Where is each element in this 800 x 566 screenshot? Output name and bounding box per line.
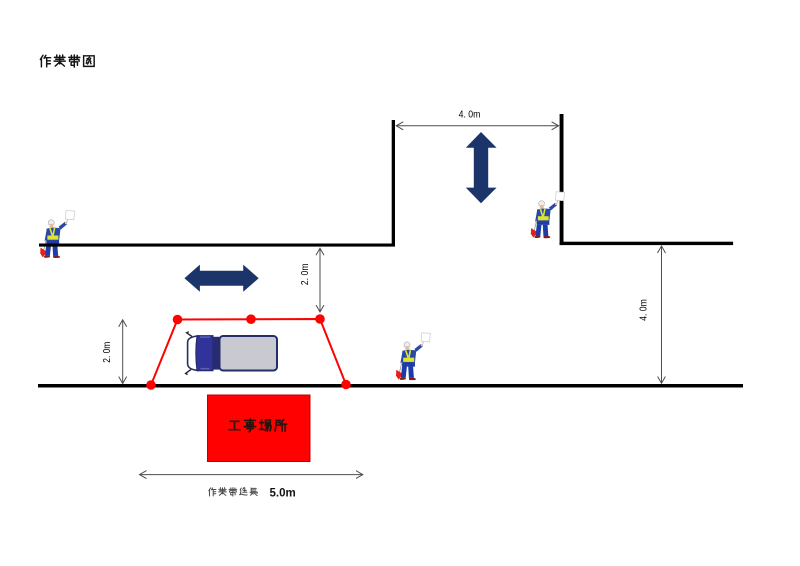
svg-text:2. 0m: 2. 0m bbox=[299, 263, 311, 285]
svg-text:4. 0m: 4. 0m bbox=[638, 299, 650, 321]
svg-text:4. 0m: 4. 0m bbox=[459, 109, 481, 121]
svg-text:2. 0m: 2. 0m bbox=[101, 342, 113, 363]
svg-text:5.0m: 5.0m bbox=[270, 487, 296, 499]
